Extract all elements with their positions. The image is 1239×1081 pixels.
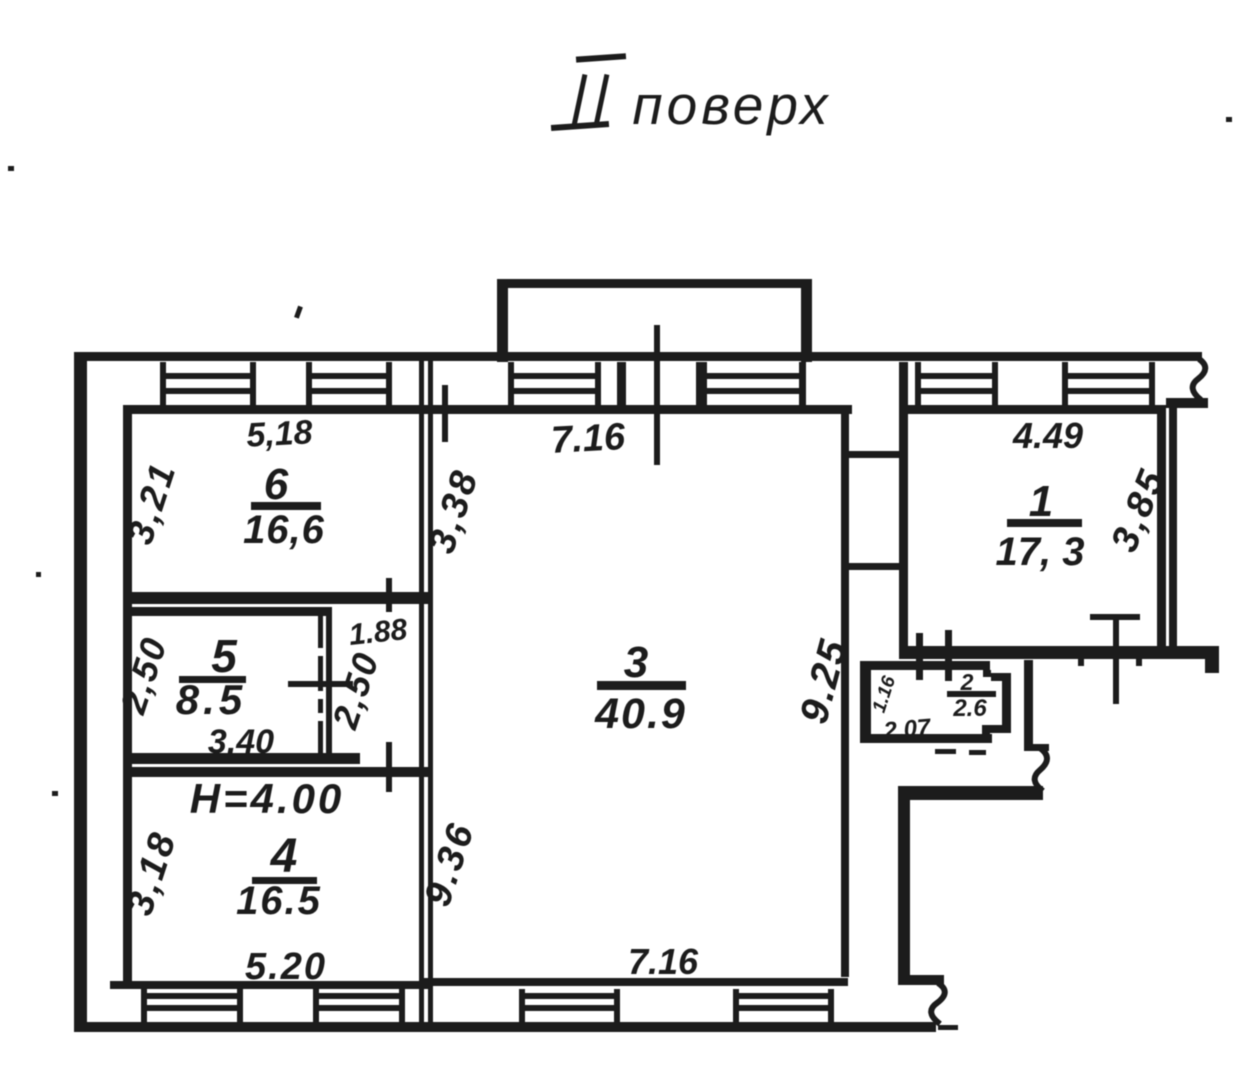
svg-text:3.40: 3.40 <box>208 723 274 761</box>
svg-text:6: 6 <box>264 460 289 509</box>
svg-text:5,18: 5,18 <box>245 413 313 454</box>
svg-text:8.5: 8.5 <box>176 676 246 723</box>
svg-text:7.16: 7.16 <box>550 416 627 462</box>
svg-text:7.16: 7.16 <box>628 941 699 982</box>
svg-text:2.07: 2.07 <box>882 714 934 745</box>
svg-text:17, 3: 17, 3 <box>996 530 1085 574</box>
svg-text:5.20: 5.20 <box>245 946 327 988</box>
svg-text:поверх: поверх <box>632 74 831 136</box>
svg-text:4: 4 <box>270 830 298 883</box>
svg-text:H=4.00: H=4.00 <box>190 775 345 822</box>
svg-text:16,6: 16,6 <box>243 508 325 552</box>
svg-text:5: 5 <box>211 630 238 682</box>
svg-text:1.88: 1.88 <box>347 613 409 652</box>
svg-text:2.6: 2.6 <box>952 695 987 722</box>
svg-text:1: 1 <box>1029 477 1053 526</box>
svg-text:40.9: 40.9 <box>594 690 687 738</box>
svg-text:4.49: 4.49 <box>1012 415 1083 456</box>
svg-text:3: 3 <box>624 638 648 687</box>
svg-text:16.5: 16.5 <box>236 879 322 923</box>
